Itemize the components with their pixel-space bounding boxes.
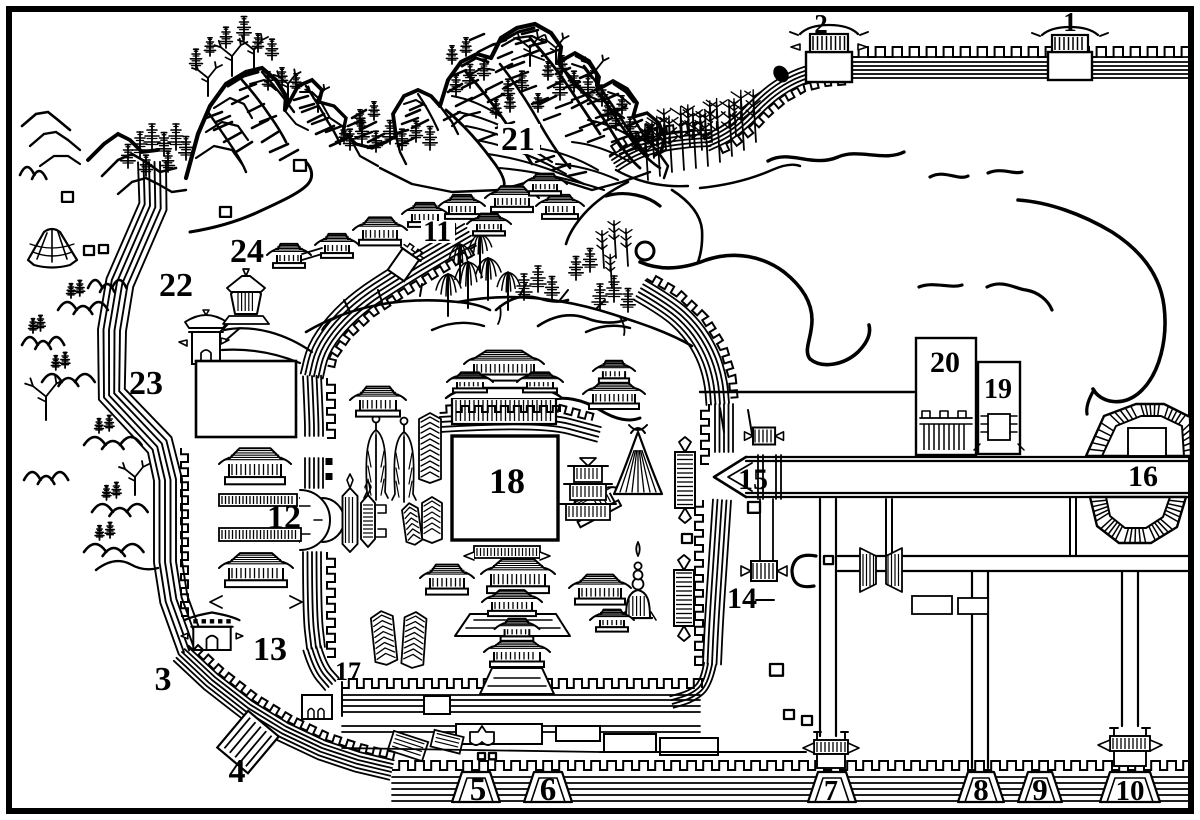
svg-text:17: 17: [335, 657, 361, 686]
svg-text:12: 12: [267, 499, 301, 536]
svg-text:16: 16: [1128, 460, 1158, 493]
svg-text:6: 6: [540, 772, 557, 808]
svg-text:4: 4: [229, 753, 246, 790]
svg-text:1: 1: [1063, 7, 1077, 37]
svg-text:13: 13: [253, 631, 287, 668]
svg-text:9: 9: [1032, 772, 1048, 807]
svg-text:18: 18: [489, 461, 525, 501]
svg-text:21: 21: [501, 121, 535, 158]
svg-text:3: 3: [155, 661, 172, 698]
svg-text:19: 19: [984, 374, 1012, 405]
svg-text:20: 20: [930, 346, 960, 379]
svg-text:2: 2: [814, 9, 828, 39]
svg-text:8: 8: [973, 772, 989, 807]
svg-text:7: 7: [824, 776, 838, 807]
svg-text:14: 14: [727, 582, 757, 615]
svg-text:24: 24: [230, 233, 264, 270]
svg-text:22: 22: [159, 267, 193, 304]
svg-text:10: 10: [1116, 775, 1145, 807]
svg-text:11: 11: [423, 215, 451, 248]
svg-text:5: 5: [470, 772, 487, 808]
svg-text:23: 23: [129, 365, 163, 402]
